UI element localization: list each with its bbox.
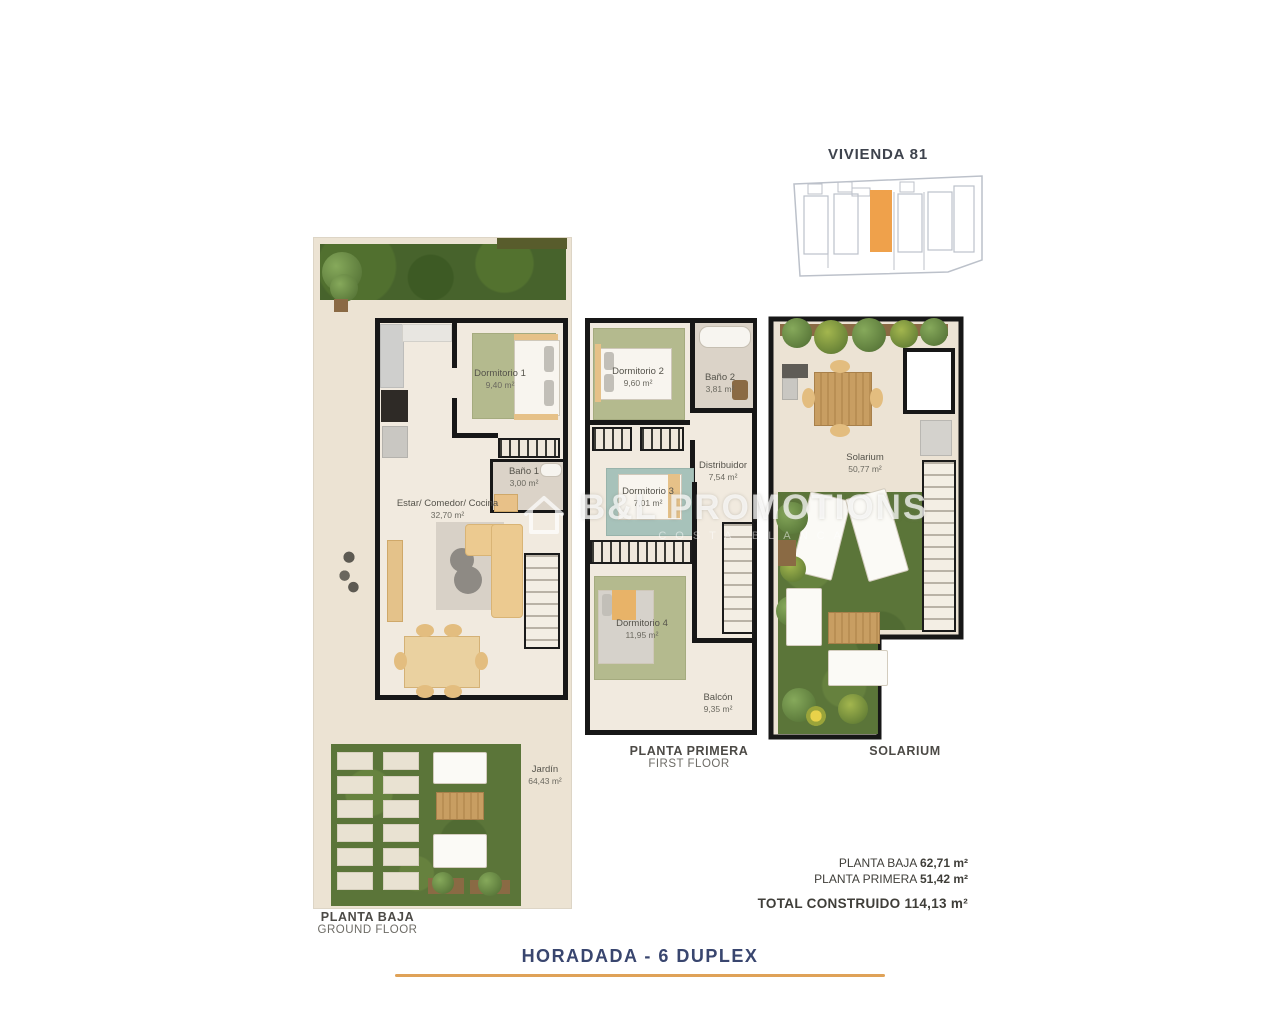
partition-wall [452,318,457,368]
partition-wall [690,408,757,413]
solarium-deck [828,612,880,644]
hedge-dark [497,238,567,249]
dining-chair [444,685,462,698]
summary-total-value: 114,13 m² [905,896,969,911]
accent-divider [395,974,885,977]
stone [337,872,373,890]
room-area: 3,00 m² [495,478,553,489]
planter-plant [920,318,948,346]
ground-floor-stairs [524,553,560,649]
dining-chair [416,624,434,637]
dining-chair [394,652,407,670]
planter-plant [814,320,848,354]
wardrobe [640,427,684,451]
stone [337,800,373,818]
solarium-stairs [922,460,956,632]
room-name: Jardín [532,764,558,775]
solarium-caption: SOLARIUM [845,744,965,758]
wardrobe [590,540,692,564]
planter-plant [782,318,812,348]
caption-en: FIRST FLOOR [618,758,760,770]
bed-accent [612,590,636,620]
lounger-grey [920,420,952,456]
solarium-chair [870,388,883,408]
room-area: 50,77 m² [830,464,900,475]
solarium-kitchenette [782,378,798,400]
stone [383,872,419,890]
room-name: Solarium [846,452,884,463]
solarium-plant [838,694,868,724]
estar-label: Estar/ Comedor/ Cocina 32,70 m² [390,498,505,521]
solarium-lounger [828,650,888,686]
partition-wall [452,433,498,438]
distribuidor-label: Distribuidor 7,54 m² [688,460,758,483]
dormitorio4-label: Dormitorio 4 11,95 m² [596,618,688,641]
summary-value: 51,42 m² [920,872,968,886]
floor-plan-sheet: VIVIENDA 81 Dormitorio 1 9,40 m² [0,0,1280,1024]
garden-lounger [433,752,487,784]
summary-line: PLANTA BAJA 62,71 m² [758,856,968,870]
solarium-lounger [786,588,822,646]
highlighted-unit [870,190,892,252]
room-name: Dormitorio 1 [474,368,526,379]
partition-wall [452,398,457,438]
room-area: 7,01 m² [602,498,694,509]
dining-chair [444,624,462,637]
caption-es: SOLARIUM [845,744,965,758]
stone [337,776,373,794]
solarium-kitchenette [782,364,808,378]
partition-wall [692,638,757,643]
caption-es: PLANTA PRIMERA [618,744,760,758]
room-area: 7,54 m² [688,472,758,483]
wardrobe [592,427,632,451]
stair-bulkhead [903,348,955,414]
stone [337,824,373,842]
room-area: 9,35 m² [688,704,748,715]
solarium-chair [802,388,815,408]
room-name: Baño 2 [705,372,735,383]
room-area: 9,60 m² [592,378,684,389]
jardin-label: Jardín 64,43 m² [520,764,570,787]
dormitorio2-label: Dormitorio 2 9,60 m² [592,366,684,389]
summary-label: PLANTA BAJA [839,856,917,870]
stone [383,824,419,842]
kitchen-counter [402,324,452,342]
project-title: HORADADA - 6 DUPLEX [0,946,1280,967]
ground-floor-caption: PLANTA BAJA GROUND FLOOR [300,910,435,936]
dining-table [404,636,480,688]
solarium-plant [776,502,808,534]
palm-pot [334,299,348,312]
room-area: 64,43 m² [520,776,570,787]
coffee-table [454,566,482,594]
sideboard [387,540,403,622]
stone [383,776,419,794]
room-area: 9,40 m² [455,380,545,391]
first-floor-caption: PLANTA PRIMERA FIRST FLOOR [618,744,760,770]
dormitorio3-label: Dormitorio 3 7,01 m² [602,486,694,509]
site-plan-drawing [788,168,988,286]
room-name: Estar/ Comedor/ Cocina [397,498,498,509]
summary-line: PLANTA PRIMERA 51,42 m² [758,872,968,886]
room-name: Balcón [703,692,732,703]
planter-plant [432,872,454,894]
bathtub [699,326,751,348]
bed-footboard [514,414,558,420]
stepping-stones [337,752,421,900]
dining-chair [475,652,488,670]
wardrobe [498,438,560,458]
garden-deck-table [436,792,484,820]
room-area: 3,81 m² [692,384,748,395]
area-summary: PLANTA BAJA 62,71 m² PLANTA PRIMERA 51,4… [758,856,968,911]
summary-value: 62,71 m² [920,856,968,870]
stone [337,752,373,770]
dining-chair [416,685,434,698]
kitchen-sink [382,426,408,458]
garden-lounger [433,834,487,868]
bano2-label: Baño 2 3,81 m² [692,372,748,395]
solarium-chair [830,360,850,373]
bed-headboard [514,334,558,340]
planter-plant [852,318,886,352]
solarium-chair [830,424,850,437]
kitchen-oven [381,390,408,422]
solarium-table [814,372,872,426]
room-name: Baño 1 [509,466,539,477]
sofa [491,524,523,618]
solarium-label: Solarium 50,77 m² [830,452,900,475]
summary-total: TOTAL CONSTRUIDO 114,13 m² [758,896,968,911]
palm-plant [330,274,358,302]
caption-en: GROUND FLOOR [300,924,435,936]
room-name: Dormitorio 2 [612,366,664,377]
bano1-label: Baño 1 3,00 m² [495,466,553,489]
bed-pillow [544,346,554,372]
bed-pillow [544,380,554,406]
stone [383,848,419,866]
balcon-label: Balcón 9,35 m² [688,692,748,715]
summary-total-label: TOTAL CONSTRUIDO [758,896,901,911]
room-area: 32,70 m² [390,510,505,521]
planter-plant [478,872,502,896]
wall-decor-branch [338,548,360,594]
partition-wall [585,420,690,425]
room-area: 11,95 m² [596,630,688,641]
site-plan-title: VIVIENDA 81 [798,146,958,163]
dormitorio1-label: Dormitorio 1 9,40 m² [455,368,545,391]
kitchen-counter [380,324,404,388]
stone [383,752,419,770]
room-name: Dormitorio 4 [616,618,668,629]
solarium-planterbox [778,540,796,566]
yellow-flower [806,706,826,726]
stone [383,800,419,818]
first-floor-stairs [722,522,754,634]
room-name: Distribuidor [699,460,747,471]
caption-es: PLANTA BAJA [300,910,435,924]
planter-plant [890,320,918,348]
bed-pillow [602,594,612,616]
room-name: Dormitorio 3 [622,486,674,497]
stone [337,848,373,866]
summary-label: PLANTA PRIMERA [814,872,916,886]
